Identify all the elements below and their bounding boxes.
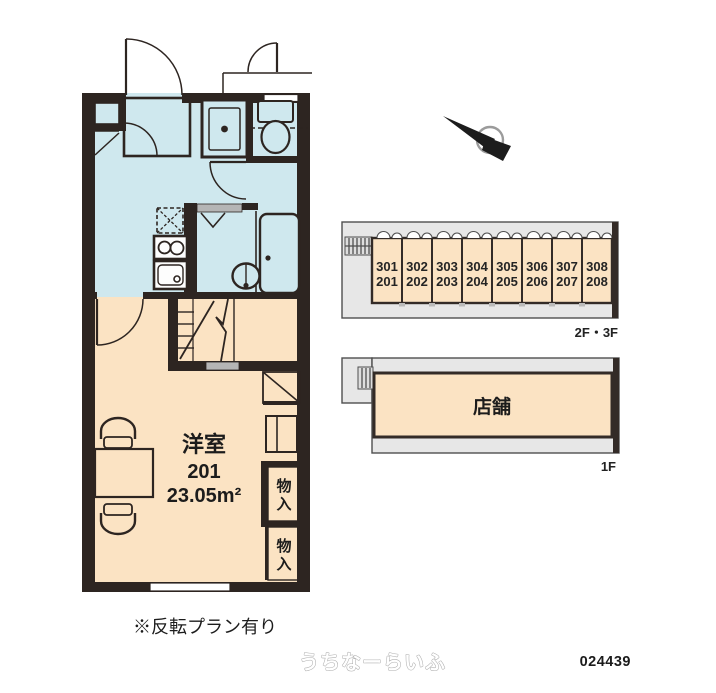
window-bottom: [150, 583, 230, 591]
under-stair-slider: [206, 362, 239, 370]
room-area-label: 23.05m²: [167, 485, 242, 507]
site-lower-stairs: [358, 367, 373, 389]
site-plan-upper: 301 201 302 202 303 203 304 204 305 205 …: [342, 222, 618, 340]
upper-floor-label: 2F・3F: [575, 325, 618, 340]
unit-label: 208: [586, 274, 608, 289]
unit-label: 204: [466, 274, 488, 289]
site-upper-right-wall: [612, 222, 618, 318]
porch-and-upper-door: [223, 43, 312, 93]
unit-label: 201: [376, 274, 398, 289]
kitchen-stove: [154, 236, 187, 259]
kitchen-sink: [154, 261, 187, 289]
room-number-label: 201: [187, 461, 220, 483]
entrance-door: [126, 39, 182, 95]
room-type-label: 洋室: [182, 432, 226, 457]
floorplan-page: 物 入 物 入 洋室 201 23.05m²: [0, 0, 716, 693]
wash-basin-unit: [202, 100, 247, 157]
floor-plan: 物 入 物 入 洋室 201 23.05m²: [82, 39, 312, 592]
bathroom-basin: [233, 264, 260, 289]
storage-1-char-1: 物: [276, 477, 291, 495]
lower-floor-label: 1F: [601, 459, 616, 474]
store-label: 店舗: [473, 395, 511, 418]
unit-label: 308: [586, 259, 608, 274]
plan-id-number: 024439: [580, 654, 631, 670]
north-arrow-icon: [443, 116, 511, 161]
storage-2-char-1: 物: [276, 537, 291, 555]
unit-label: 301: [376, 259, 398, 274]
watermark-logo: うちなーらいふ: [299, 651, 446, 674]
unit-label: 203: [436, 274, 458, 289]
bathtub: [260, 214, 299, 293]
unit-label: 207: [556, 274, 578, 289]
unit-label: 205: [496, 274, 518, 289]
unit-label: 202: [406, 274, 428, 289]
reverse-plan-note: ※反転プラン有り: [133, 617, 277, 637]
storage-1-char-2: 入: [276, 496, 291, 513]
sliding-door-track: [197, 204, 242, 212]
unit-label: 305: [496, 259, 518, 274]
site-upper-stairs: [345, 237, 372, 255]
unit-label: 306: [526, 259, 548, 274]
site-lower-right-wall: [613, 358, 619, 453]
floorplan-canvas: 物 入 物 入 洋室 201 23.05m²: [0, 0, 716, 693]
unit-label: 304: [466, 259, 488, 274]
unit-label: 307: [556, 259, 578, 274]
unit-label: 303: [436, 259, 458, 274]
storage-2-char-2: 入: [276, 556, 291, 573]
unit-label: 302: [406, 259, 428, 274]
site-plan-lower: 店舗 1F: [342, 358, 619, 474]
unit-label: 206: [526, 274, 548, 289]
